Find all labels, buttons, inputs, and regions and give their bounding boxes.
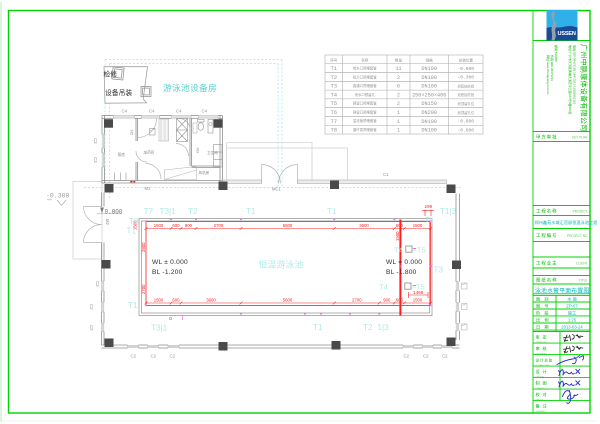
svg-text:比 例: 比 例 (536, 317, 550, 324)
svg-text:施工: 施工 (568, 309, 576, 316)
svg-text:溢流管预埋套管: 溢流管预埋套管 (353, 118, 377, 123)
svg-text:邮编:510655: 邮编:510655 (554, 45, 559, 62)
svg-text:1: 1 (397, 128, 400, 134)
svg-text:C2: C2 (151, 354, 157, 359)
svg-text:2: 2 (397, 92, 400, 98)
svg-text:预留口预埋套管: 预留口预埋套管 (353, 109, 377, 114)
svg-text:地址:广州市天河区黄埔大道西平云路163号2楼206室: 地址:广州市天河区黄埔大道西平云路163号2楼206室 (568, 45, 573, 115)
svg-text:循环泵预埋套管: 循环泵预埋套管 (353, 127, 377, 132)
svg-text:2700: 2700 (214, 223, 224, 228)
svg-text:DRAWN: DRAWN (536, 387, 545, 390)
svg-text:BL -1.200: BL -1.200 (152, 269, 183, 276)
svg-text:5600: 5600 (283, 223, 293, 228)
svg-text:CLIENT: CLIENT (576, 262, 587, 266)
svg-text:T1: T1 (128, 301, 138, 310)
svg-text:600: 600 (172, 223, 180, 228)
svg-text:水 施: 水 施 (567, 296, 577, 303)
svg-text:-0.600: -0.600 (458, 127, 475, 133)
svg-text:PROJECT NO: PROJECT NO (567, 234, 588, 238)
svg-text:600: 600 (396, 223, 404, 228)
svg-text:T4: T4 (330, 91, 337, 98)
svg-text:T6: T6 (330, 109, 337, 116)
svg-text:DN100: DN100 (421, 119, 437, 125)
svg-text:名称: 名称 (361, 57, 369, 62)
svg-text:游泳池设备房: 游泳池设备房 (163, 82, 217, 93)
svg-text:检修: 检修 (104, 70, 118, 79)
svg-text:250×250×400: 250×250×400 (412, 92, 446, 98)
svg-text:T2: T2 (330, 74, 337, 81)
svg-text:图 别: 图 别 (536, 296, 550, 303)
svg-text:数量: 数量 (395, 57, 403, 62)
svg-text:C4: C4 (202, 108, 208, 113)
svg-text:设计总监: 设计总监 (536, 358, 554, 363)
svg-text:T1: T1 (330, 65, 337, 72)
svg-text:T1: T1 (246, 207, 256, 216)
svg-text:1|3: 1|3 (378, 323, 390, 332)
svg-text:C2: C2 (170, 354, 176, 359)
svg-text:0.000: 0.000 (105, 208, 123, 215)
svg-text:6: 6 (397, 84, 400, 90)
svg-text:C1: C1 (383, 172, 389, 177)
svg-text:PROOF: PROOF (536, 400, 544, 402)
svg-text:T7: T7 (144, 207, 154, 216)
svg-text:-0.300: -0.300 (46, 193, 70, 200)
svg-text:M2: M2 (130, 130, 135, 136)
svg-text:T6: T6 (425, 217, 433, 224)
svg-text:600: 600 (396, 298, 404, 303)
svg-text:C2: C2 (442, 354, 448, 359)
svg-text:1500: 1500 (154, 298, 164, 303)
svg-text:DN150: DN150 (421, 101, 437, 107)
svg-text:给水口预埋套管: 给水口预埋套管 (353, 66, 377, 71)
svg-text:EXAMINED: EXAMINED (536, 353, 548, 356)
svg-text:设备吊装: 设备吊装 (105, 88, 132, 97)
svg-text:-0.300: -0.300 (458, 75, 475, 81)
svg-text:-0.600: -0.600 (458, 66, 475, 72)
svg-text:工程名称: 工程名称 (536, 208, 558, 215)
svg-text:郑州鑫苑水域汇官邸恒温泳池工程: 郑州鑫苑水域汇官邸恒温泳池工程 (535, 219, 599, 226)
svg-text:T1: T1 (327, 207, 337, 216)
svg-text:11: 11 (395, 66, 401, 72)
svg-text:安装位置: 安装位置 (459, 57, 474, 62)
svg-text:5600: 5600 (283, 298, 293, 303)
svg-text:900: 900 (383, 298, 391, 303)
svg-text:1500: 1500 (413, 223, 423, 228)
svg-text:REMARKS: REMARKS (536, 410, 547, 413)
svg-text:MC1: MC1 (272, 187, 282, 192)
svg-text:=T5: =T5 (412, 283, 425, 292)
svg-text:卫生间: 卫生间 (207, 150, 218, 155)
svg-text:T1: T1 (313, 323, 323, 332)
svg-text:M3: M3 (196, 148, 201, 154)
svg-text:T3: T3 (434, 266, 444, 275)
svg-text:=T5: =T5 (413, 246, 426, 255)
svg-text:T2: T2 (188, 207, 198, 216)
svg-text:T1: T1 (127, 227, 137, 236)
svg-text:APPROVED: APPROVED (536, 341, 549, 344)
svg-text:DN100: DN100 (421, 84, 437, 90)
svg-text:2700: 2700 (352, 298, 362, 303)
svg-text:规格: 规格 (426, 57, 434, 62)
svg-text:DN100: DN100 (421, 75, 437, 81)
svg-text:风机房: 风机房 (199, 170, 210, 175)
svg-text:工程编号: 工程编号 (536, 232, 558, 239)
svg-text:T2: T2 (363, 323, 373, 332)
svg-text:电话:020-38473159 38473211 13802: 电话:020-38473159 38473211 13802963110 (573, 45, 578, 104)
svg-text:ZP-07: ZP-07 (566, 304, 578, 309)
svg-text:600: 600 (172, 298, 180, 303)
svg-text:校 对: 校 对 (536, 391, 548, 398)
svg-text:C4: C4 (122, 108, 128, 113)
svg-text:900: 900 (185, 223, 193, 228)
svg-text:T4: T4 (394, 246, 403, 255)
svg-text:KEY PLAN: KEY PLAN (572, 136, 588, 140)
svg-text:恒温游泳池: 恒温游泳池 (259, 259, 304, 270)
svg-text:广州中鹏康体设备有限公司: 广州中鹏康体设备有限公司 (580, 44, 589, 132)
svg-text:C3: C3 (93, 138, 98, 144)
svg-text:泳池水管平面布置图: 泳池水管平面布置图 (535, 287, 589, 295)
svg-text:泵房: 泵房 (118, 152, 126, 157)
svg-text:WL = 0.000: WL = 0.000 (386, 259, 422, 266)
svg-text:DESIGN: DESIGN (536, 377, 545, 379)
svg-text:3600: 3600 (359, 223, 369, 228)
svg-text:USSEN: USSEN (558, 31, 576, 37)
svg-text:1500: 1500 (413, 298, 423, 303)
svg-text:2: 2 (397, 101, 400, 107)
svg-text:T3: T3 (330, 83, 337, 90)
svg-text:T3|1: T3|1 (151, 324, 168, 333)
svg-text:C2: C2 (131, 354, 137, 359)
svg-text:T4: T4 (379, 283, 388, 292)
svg-text:3600: 3600 (206, 298, 216, 303)
svg-text:备 注: 备 注 (536, 403, 548, 410)
svg-text:阶 段: 阶 段 (536, 309, 550, 316)
svg-text:1: 1 (397, 110, 400, 116)
svg-text:T8: T8 (330, 127, 337, 134)
svg-text:1:25: 1:25 (568, 318, 577, 323)
svg-text:T1|3: T1|3 (440, 207, 457, 216)
svg-text:TITLE: TITLE (579, 279, 588, 283)
svg-text:T8: T8 (129, 217, 139, 226)
svg-text:DN200: DN200 (421, 110, 437, 116)
svg-text:加药间: 加药间 (144, 150, 155, 155)
svg-text:审 定: 审 定 (536, 334, 548, 341)
svg-text:2013-03-24: 2013-03-24 (561, 325, 583, 330)
svg-text:T7: T7 (330, 118, 337, 125)
svg-text:WL ± 0.000: WL ± 0.000 (152, 259, 188, 266)
svg-text:-0.600: -0.600 (458, 119, 475, 125)
svg-text:C2: C2 (423, 354, 429, 359)
svg-text:吸污口预埋套管: 吸污口预埋套管 (353, 74, 377, 79)
svg-text:D.DIRECTOR: D.DIRECTOR (536, 365, 550, 367)
svg-text:M1: M1 (145, 186, 151, 191)
svg-text:BL -1.800: BL -1.800 (386, 269, 417, 276)
svg-text:T5: T5 (330, 100, 337, 107)
svg-text:C2: C2 (89, 325, 94, 331)
svg-text:2700: 2700 (141, 284, 146, 294)
svg-text:C2: C2 (404, 354, 410, 359)
svg-text:2800: 2800 (141, 242, 146, 252)
svg-text:C3: C3 (93, 157, 98, 163)
svg-text:审 核: 审 核 (536, 345, 548, 352)
svg-text:制 图: 制 图 (536, 380, 548, 387)
svg-text:图纸名称: 图纸名称 (536, 277, 558, 284)
svg-text:M2: M2 (105, 219, 110, 225)
svg-text:DN100: DN100 (421, 66, 437, 72)
svg-text:甲方审批: 甲方审批 (536, 134, 558, 141)
svg-text:T3|1: T3|1 (160, 207, 177, 216)
svg-text:200: 200 (425, 205, 433, 210)
svg-text:1500: 1500 (154, 223, 164, 228)
svg-text:序号: 序号 (330, 57, 338, 62)
svg-text:C4: C4 (176, 108, 182, 113)
svg-text:PROJECT: PROJECT (573, 210, 588, 214)
svg-text:1: 1 (397, 119, 400, 125)
svg-text:C3: C3 (95, 281, 100, 287)
svg-text:工程业主: 工程业主 (536, 260, 558, 267)
svg-text:泄水口预留孔: 泄水口预留孔 (355, 92, 376, 97)
svg-text:预留口预埋套管: 预留口预埋套管 (353, 101, 377, 106)
svg-text:DN100: DN100 (421, 128, 437, 134)
svg-text:C2: C2 (89, 304, 94, 310)
svg-text:C4: C4 (149, 108, 155, 113)
svg-text:直通口预埋套管: 直通口预埋套管 (353, 83, 377, 88)
svg-text:2: 2 (397, 75, 400, 81)
svg-text:设 计: 设 计 (536, 368, 548, 375)
svg-text:1500: 1500 (395, 231, 400, 241)
